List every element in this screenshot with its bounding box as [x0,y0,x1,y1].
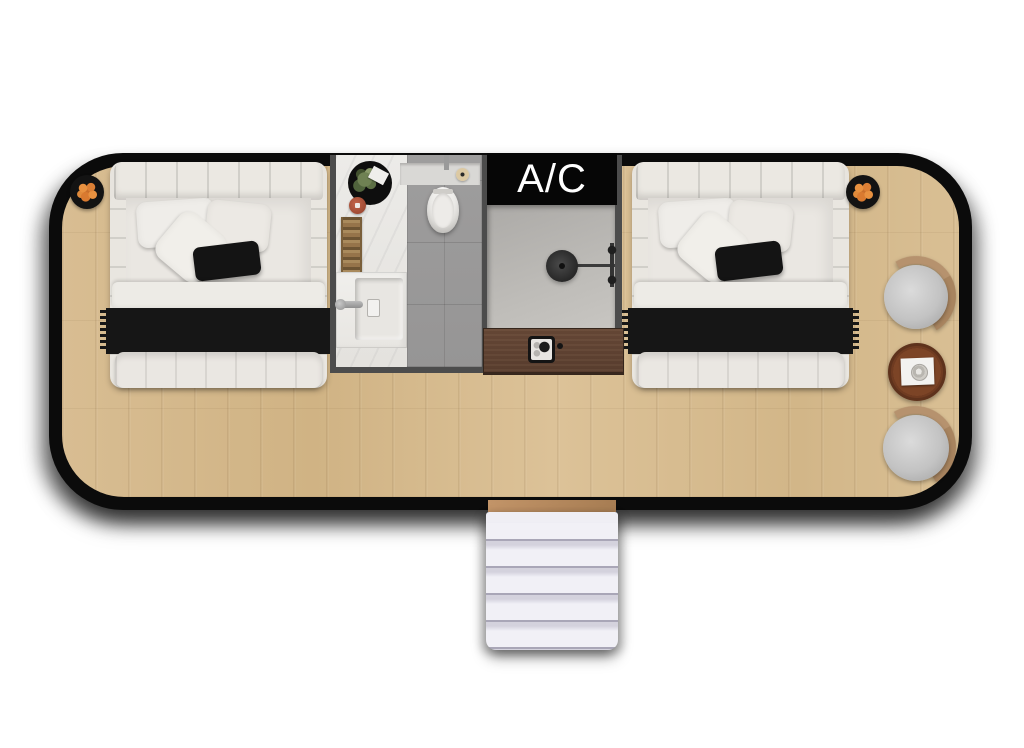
room-outline: A/C [49,153,972,510]
portable-stove [528,336,555,363]
fruit-plate-left [70,175,104,209]
toilet [427,187,459,233]
floor-plan-scene: A/C [0,0,1024,748]
entry-stairs [486,500,618,650]
toilet-paper-roll [456,168,469,181]
lounge-chair-bottom [883,415,949,481]
sink-drain [367,299,380,317]
fruit-plate-right [846,175,880,209]
flush-pipe [444,155,449,170]
bathroom [330,155,487,373]
double-bed-right [632,162,849,388]
folded-sheet-band [634,282,847,310]
sink-counter [336,272,407,348]
lounge-chair-top [884,265,948,329]
double-bed-left [110,162,327,388]
faucet [337,301,363,308]
stair-landing [488,500,616,512]
folded-sheet-band [112,282,325,310]
tufted-headboard [114,162,323,200]
stair-steps [486,512,618,650]
duvet-foot [637,352,844,388]
black-throw-blanket [106,308,331,354]
rain-shower-head [546,250,578,282]
tufted-headboard [636,162,845,200]
cup [911,364,929,382]
round-side-table [888,343,946,401]
console-cabinet [483,328,624,375]
towel-ladder [341,217,362,273]
ac-label: A/C [517,159,587,199]
terracotta-stool [349,197,366,214]
shower-valves [605,243,619,287]
ac-closet: A/C [487,153,617,205]
duvet-foot [115,352,322,388]
bathroom-wall-bottom [330,367,487,373]
serving-tray [901,357,935,385]
black-throw-blanket [628,308,853,354]
